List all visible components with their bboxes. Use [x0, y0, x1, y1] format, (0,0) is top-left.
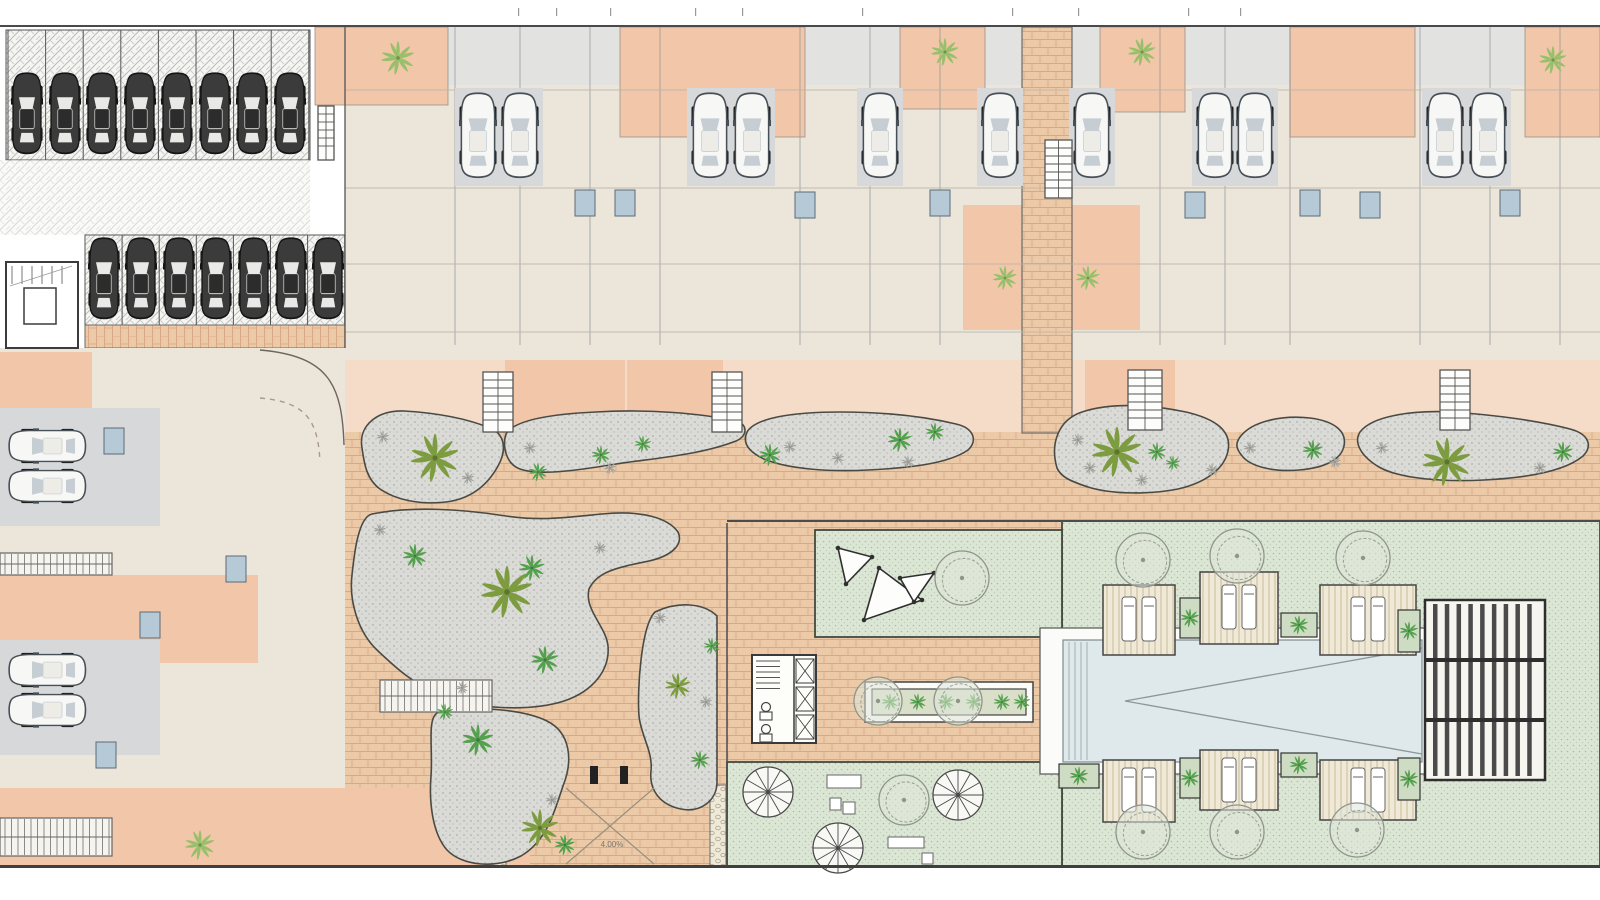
dimension-tick [556, 8, 557, 16]
bathroom [1185, 192, 1205, 218]
dimension-tick [1078, 8, 1079, 16]
car-parked [86, 73, 119, 153]
walkway-strip [380, 680, 492, 712]
sun-deck [1103, 585, 1175, 655]
dimension-tick [862, 8, 863, 16]
tree-trunk [1355, 828, 1359, 832]
garden-table [922, 853, 933, 864]
tree-trunk [1235, 554, 1239, 558]
left-terrace [0, 352, 92, 414]
tree-canopy [934, 677, 982, 725]
bathroom [615, 190, 635, 216]
car-parked [275, 238, 308, 318]
car-parked [163, 238, 196, 318]
parking-aisle-paving [0, 160, 310, 235]
planter-box [1180, 758, 1200, 798]
dimension-tick [1240, 8, 1241, 16]
sail-anchor [862, 618, 867, 623]
car-driveway [733, 93, 772, 177]
car-parked [238, 238, 271, 318]
pergola-slat [1527, 604, 1532, 776]
deck-boards [1103, 585, 1175, 655]
planter-box [1281, 613, 1317, 637]
car-driveway [1236, 93, 1275, 177]
car-driveway [9, 652, 85, 688]
tree-trunk [1361, 556, 1365, 560]
pergola-slat [1504, 604, 1509, 776]
sail-anchor [870, 555, 875, 560]
central-walkway [1022, 27, 1072, 433]
tree-canopy [1336, 531, 1390, 585]
courtyard [1072, 205, 1140, 330]
pergola-slat [1445, 604, 1450, 776]
planter-box [1180, 598, 1200, 638]
bathroom [96, 742, 116, 768]
planter-box [1281, 753, 1317, 777]
car-driveway [9, 468, 85, 504]
car-parked [125, 238, 158, 318]
patio [900, 27, 985, 109]
sail-anchor [877, 566, 882, 571]
sun-lounger [1351, 597, 1365, 641]
sun-lounger [1242, 585, 1256, 629]
parasol [933, 770, 983, 820]
sail-anchor [836, 546, 841, 551]
tree-canopy [1116, 805, 1170, 859]
dimension-tick [1188, 8, 1189, 16]
left-driveway [0, 408, 160, 526]
pergola-beam [1425, 718, 1545, 722]
planter-box [1059, 764, 1099, 788]
car-parked [200, 238, 233, 318]
garden-table [843, 802, 855, 814]
gate-post [620, 766, 628, 784]
car-parked [11, 73, 44, 153]
sun-lounger [1242, 758, 1256, 802]
ramp-label: 4.00% [601, 840, 624, 849]
site-plan-drawing: 4.00% [0, 0, 1600, 900]
car-driveway [981, 93, 1020, 177]
swimming-pool [1063, 640, 1422, 762]
car-driveway [459, 93, 498, 177]
sun-lounger [1371, 768, 1385, 812]
garden-table [827, 775, 861, 788]
elevator [24, 288, 56, 324]
tree-trunk [1141, 558, 1145, 562]
bathroom [575, 190, 595, 216]
car-parked [49, 73, 82, 153]
car-driveway [9, 428, 85, 464]
pergola-slat [1492, 604, 1497, 776]
car-driveway [861, 93, 900, 177]
pergola-slat [1433, 604, 1438, 776]
car-driveway [1073, 93, 1112, 177]
stairs-icon [318, 106, 334, 160]
bathroom [104, 428, 124, 454]
car-parked [199, 73, 232, 153]
tree-trunk [1235, 830, 1239, 834]
pergola [1425, 600, 1545, 780]
walkway-strip [0, 818, 112, 856]
dimension-tick [518, 8, 519, 16]
garden-table [830, 798, 841, 810]
car-parked [274, 73, 307, 153]
car-driveway [691, 93, 730, 177]
pergola-slat [1480, 604, 1485, 776]
tree-trunk [1141, 830, 1145, 834]
site-plan-page: 4.00% [0, 0, 1600, 900]
car-parked [161, 73, 194, 153]
stairs-icon [483, 372, 513, 432]
sail-anchor [920, 598, 925, 603]
tree-canopy [935, 551, 989, 605]
tree-canopy [879, 775, 929, 825]
pergola-slat [1468, 604, 1473, 776]
gravel-bed [745, 412, 973, 471]
parasol-pole [956, 793, 960, 797]
car-parked [312, 238, 345, 318]
patio [1525, 27, 1600, 137]
sun-lounger [1371, 597, 1385, 641]
sail-anchor [912, 600, 917, 605]
patio [315, 27, 448, 105]
sun-deck [1200, 750, 1278, 810]
car-driveway [1426, 93, 1465, 177]
tree-trunk [956, 699, 960, 703]
planter-box [1398, 610, 1420, 652]
car-driveway [1196, 93, 1235, 177]
sun-lounger [1222, 758, 1236, 802]
tree-canopy [1210, 805, 1264, 859]
tree-trunk [960, 576, 964, 580]
bathroom [1300, 190, 1320, 216]
sail-anchor [898, 576, 903, 581]
stairs-icon [1440, 370, 1470, 430]
car-driveway [9, 692, 85, 728]
pool-facility-building [752, 655, 816, 743]
car-driveway [501, 93, 540, 177]
bathroom [140, 612, 160, 638]
parasol-pole [836, 846, 840, 850]
tree-canopy [1330, 803, 1384, 857]
sun-lounger [1122, 768, 1136, 812]
parasol [743, 767, 793, 817]
bathroom [795, 192, 815, 218]
stairs-icon [712, 372, 742, 432]
bathroom [226, 556, 246, 582]
pergola-slat [1457, 604, 1462, 776]
walkway-strip [0, 553, 112, 575]
pergola-slat [1515, 604, 1520, 776]
tree-canopy [1116, 533, 1170, 587]
dimension-tick [610, 8, 611, 16]
sail-anchor [844, 582, 849, 587]
car-parked [124, 73, 157, 153]
car-parked [236, 73, 269, 153]
stairs-icon [1128, 370, 1162, 430]
parasol-pole [766, 790, 770, 794]
dimension-tick [695, 8, 696, 16]
tree-trunk [876, 699, 880, 703]
dimension-tick [742, 8, 743, 16]
car-parked [88, 238, 121, 318]
sun-lounger [1222, 585, 1236, 629]
courtyard [963, 205, 1023, 330]
garden-table [888, 837, 924, 848]
bathroom [1500, 190, 1520, 216]
stairs-icon [1045, 140, 1072, 198]
bathroom [930, 190, 950, 216]
sun-lounger [1122, 597, 1136, 641]
tree-canopy [854, 677, 902, 725]
tree-trunk [902, 798, 906, 802]
paver-strip [85, 325, 345, 348]
planter-box [1398, 758, 1420, 800]
patio [1290, 27, 1415, 137]
tree-canopy [1210, 529, 1264, 583]
deck-boards [1200, 750, 1278, 810]
car-driveway [1469, 93, 1508, 177]
gate-post [590, 766, 598, 784]
bathroom [1360, 192, 1380, 218]
pergola-beam [1425, 658, 1545, 662]
dimension-tick [1012, 8, 1013, 16]
sun-lounger [1142, 597, 1156, 641]
